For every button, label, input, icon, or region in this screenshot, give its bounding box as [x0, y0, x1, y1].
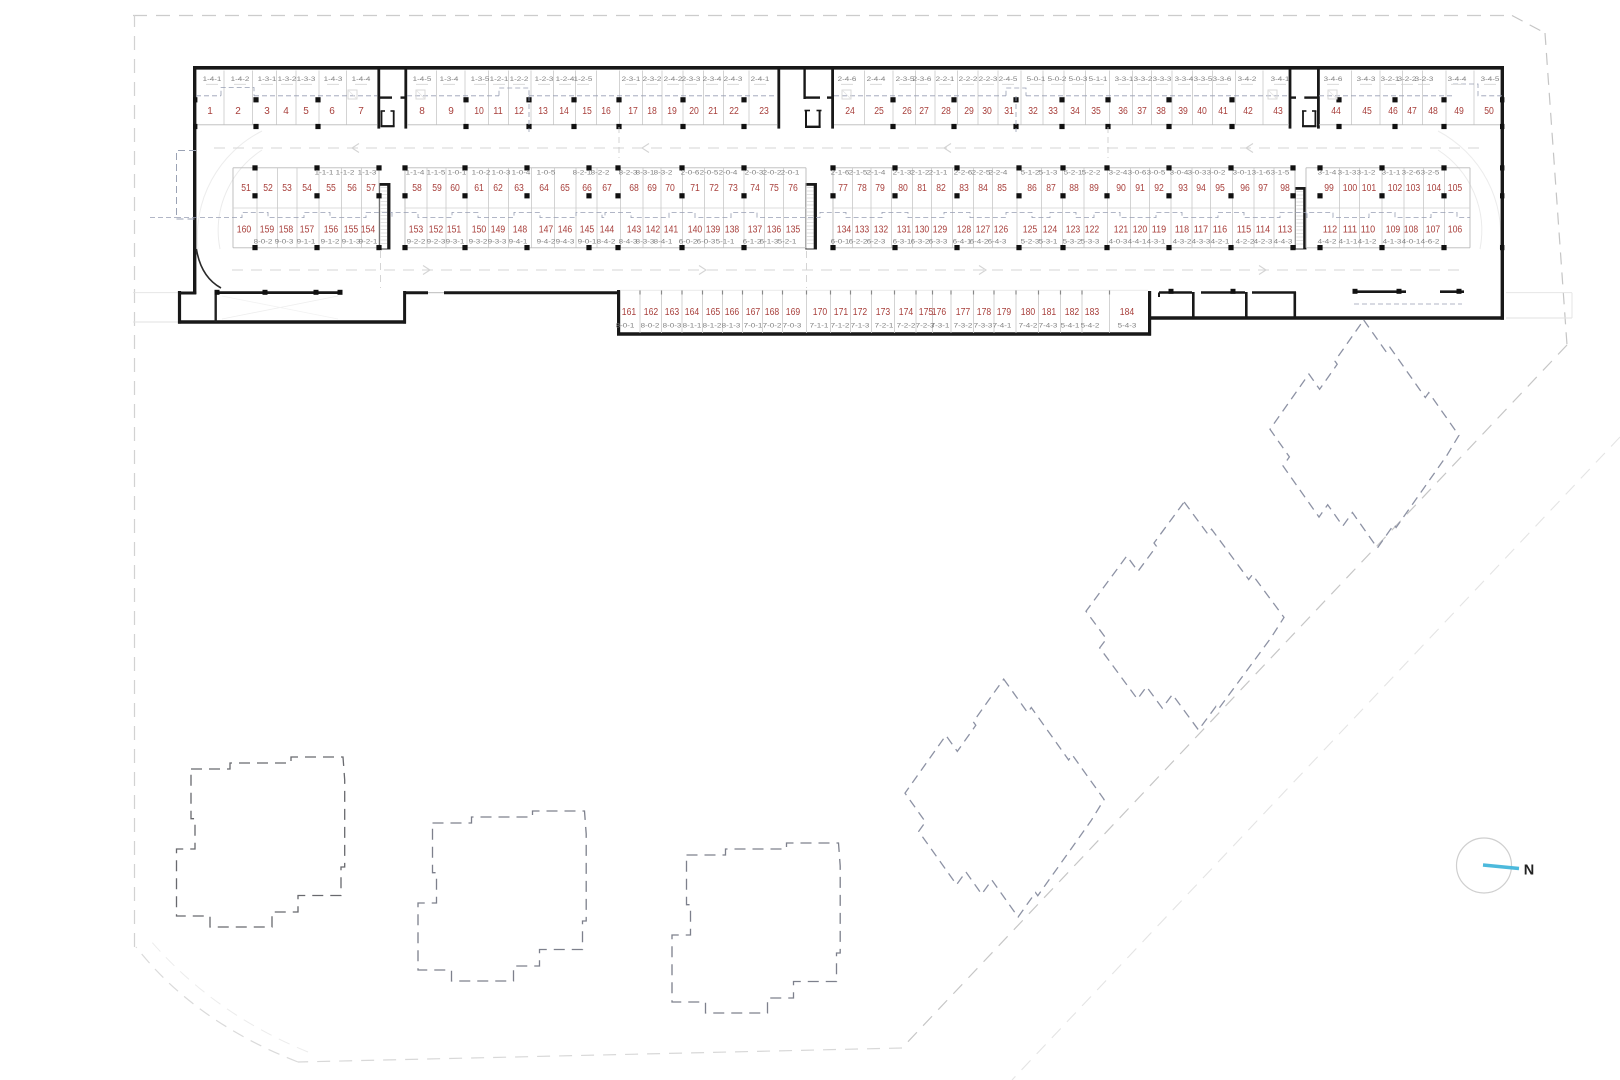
- svg-text:7-3-3: 7-3-3: [974, 323, 993, 330]
- svg-text:7-4-3: 7-4-3: [1039, 323, 1058, 330]
- svg-text:5-3-2: 5-3-2: [1063, 239, 1082, 246]
- svg-text:3-4-4: 3-4-4: [1448, 76, 1467, 83]
- svg-text:67: 67: [602, 183, 612, 194]
- svg-text:1-2-5: 1-2-5: [574, 76, 593, 83]
- svg-text:1-4-2: 1-4-2: [231, 76, 250, 83]
- svg-text:24: 24: [845, 106, 855, 117]
- svg-text:18: 18: [647, 106, 657, 117]
- svg-text:6-4-3: 6-4-3: [988, 239, 1007, 246]
- svg-text:6-4-2: 6-4-2: [970, 239, 989, 246]
- svg-text:144: 144: [600, 225, 615, 236]
- svg-text:135: 135: [786, 225, 801, 236]
- svg-text:136: 136: [767, 225, 782, 236]
- svg-text:55: 55: [326, 183, 336, 194]
- svg-text:8-1-1: 8-1-1: [683, 323, 702, 330]
- svg-text:57: 57: [366, 183, 376, 194]
- svg-text:1-4-5: 1-4-5: [413, 76, 432, 83]
- svg-text:15: 15: [582, 106, 592, 117]
- svg-text:3-4-3: 3-4-3: [1357, 76, 1376, 83]
- svg-text:7-4-1: 7-4-1: [993, 323, 1012, 330]
- svg-text:8-2-1: 8-2-1: [573, 169, 592, 176]
- svg-text:1-2-1: 1-2-1: [490, 76, 509, 83]
- svg-text:4-2-1: 4-2-1: [1211, 239, 1230, 246]
- svg-text:139: 139: [706, 225, 721, 236]
- svg-text:53: 53: [282, 183, 292, 194]
- svg-text:137: 137: [748, 225, 763, 236]
- svg-text:5-2-2: 5-2-2: [1082, 169, 1101, 176]
- svg-text:43: 43: [1273, 106, 1283, 117]
- svg-text:54: 54: [302, 183, 312, 194]
- svg-text:169: 169: [786, 307, 801, 318]
- svg-text:92: 92: [1154, 183, 1164, 194]
- svg-text:164: 164: [685, 307, 700, 318]
- svg-text:162: 162: [644, 307, 659, 318]
- svg-text:95: 95: [1215, 183, 1225, 194]
- svg-text:127: 127: [976, 225, 991, 236]
- svg-text:183: 183: [1085, 307, 1100, 318]
- svg-text:3-0-2: 3-0-2: [1207, 169, 1226, 176]
- svg-text:3-0-4: 3-0-4: [1170, 169, 1189, 176]
- svg-text:3-0-1: 3-0-1: [1233, 169, 1252, 176]
- svg-text:85: 85: [997, 183, 1007, 194]
- svg-text:52: 52: [263, 183, 273, 194]
- svg-text:28: 28: [941, 106, 951, 117]
- svg-text:126: 126: [994, 225, 1009, 236]
- svg-text:9-4-2: 9-4-2: [537, 239, 556, 246]
- svg-text:5: 5: [303, 106, 309, 117]
- svg-text:4-1-1: 4-1-1: [1339, 239, 1358, 246]
- svg-text:39: 39: [1178, 106, 1188, 117]
- svg-text:134: 134: [837, 225, 852, 236]
- svg-text:2-0-2: 2-0-2: [763, 169, 782, 176]
- svg-text:10: 10: [474, 106, 484, 117]
- svg-text:5-1-2: 5-1-2: [1021, 169, 1040, 176]
- svg-text:168: 168: [765, 307, 780, 318]
- svg-text:2-0-3: 2-0-3: [745, 169, 764, 176]
- svg-text:2-2-6: 2-2-6: [954, 169, 973, 176]
- svg-text:118: 118: [1175, 225, 1190, 236]
- svg-text:90: 90: [1116, 183, 1126, 194]
- svg-text:56: 56: [347, 183, 357, 194]
- svg-text:20: 20: [689, 106, 699, 117]
- svg-text:68: 68: [629, 183, 639, 194]
- svg-text:181: 181: [1042, 307, 1057, 318]
- svg-text:110: 110: [1361, 225, 1376, 236]
- svg-text:180: 180: [1021, 307, 1036, 318]
- svg-text:2: 2: [235, 106, 241, 117]
- svg-text:4-6-2: 4-6-2: [1421, 239, 1440, 246]
- svg-text:21: 21: [708, 106, 718, 117]
- svg-text:9-1-2: 9-1-2: [321, 239, 340, 246]
- svg-text:5-4-3: 5-4-3: [1118, 323, 1137, 330]
- svg-text:2-3-1: 2-3-1: [622, 76, 641, 83]
- svg-text:2-1-4: 2-1-4: [867, 169, 886, 176]
- svg-text:2-1-5: 2-1-5: [849, 169, 868, 176]
- svg-text:7-4-2: 7-4-2: [1019, 323, 1038, 330]
- svg-text:58: 58: [412, 183, 422, 194]
- svg-text:170: 170: [813, 307, 828, 318]
- svg-text:2-1-1: 2-1-1: [929, 169, 948, 176]
- svg-text:2-4-4: 2-4-4: [867, 76, 886, 83]
- svg-text:111: 111: [1343, 225, 1358, 236]
- svg-text:96: 96: [1240, 183, 1250, 194]
- svg-text:1-4-4: 1-4-4: [352, 76, 371, 83]
- svg-text:140: 140: [688, 225, 703, 236]
- svg-text:46: 46: [1388, 106, 1398, 117]
- svg-text:103: 103: [1406, 183, 1421, 194]
- svg-text:33: 33: [1048, 106, 1058, 117]
- svg-text:61: 61: [474, 183, 484, 194]
- svg-text:9: 9: [448, 106, 454, 117]
- svg-text:3-3-3: 3-3-3: [1153, 76, 1172, 83]
- svg-text:8: 8: [419, 106, 425, 117]
- svg-text:109: 109: [1386, 225, 1401, 236]
- svg-text:6-2-3: 6-2-3: [867, 239, 886, 246]
- svg-text:165: 165: [706, 307, 721, 318]
- svg-text:5-1-1: 5-1-1: [716, 239, 735, 246]
- svg-text:34: 34: [1070, 106, 1080, 117]
- svg-text:2-3-2: 2-3-2: [643, 76, 662, 83]
- svg-text:101: 101: [1362, 183, 1377, 194]
- svg-text:3-3-4: 3-3-4: [1175, 76, 1194, 83]
- svg-text:4-3-2: 4-3-2: [1173, 239, 1192, 246]
- svg-text:8-1-2: 8-1-2: [703, 323, 722, 330]
- svg-text:4-0-3: 4-0-3: [1109, 239, 1128, 246]
- svg-text:2-1-6: 2-1-6: [831, 169, 850, 176]
- svg-text:60: 60: [450, 183, 460, 194]
- svg-text:6-3-2: 6-3-2: [911, 239, 930, 246]
- svg-text:3-1-2: 3-1-2: [1357, 169, 1376, 176]
- svg-text:8-3-2: 8-3-2: [654, 169, 673, 176]
- svg-text:179: 179: [997, 307, 1012, 318]
- svg-text:7-2-2: 7-2-2: [897, 323, 916, 330]
- svg-text:1-4-1: 1-4-1: [203, 76, 222, 83]
- svg-text:166: 166: [725, 307, 740, 318]
- svg-text:3-2-5: 3-2-5: [1421, 169, 1440, 176]
- svg-text:1-2-4: 1-2-4: [556, 76, 575, 83]
- svg-text:5-2-1: 5-2-1: [1064, 169, 1083, 176]
- svg-text:2-0-4: 2-0-4: [719, 169, 738, 176]
- svg-text:4-4-1: 4-4-1: [1128, 239, 1147, 246]
- svg-text:19: 19: [667, 106, 677, 117]
- svg-text:25: 25: [874, 106, 884, 117]
- svg-text:9-3-1: 9-3-1: [446, 239, 465, 246]
- svg-text:16: 16: [601, 106, 611, 117]
- svg-text:122: 122: [1085, 225, 1100, 236]
- svg-text:105: 105: [1448, 183, 1463, 194]
- svg-text:12: 12: [514, 106, 524, 117]
- svg-text:6-0-1: 6-0-1: [831, 239, 850, 246]
- svg-text:8-1-3: 8-1-3: [722, 323, 741, 330]
- svg-text:1-1-1: 1-1-1: [315, 169, 334, 176]
- svg-text:130: 130: [915, 225, 930, 236]
- svg-text:106: 106: [1448, 225, 1463, 236]
- svg-text:150: 150: [472, 225, 487, 236]
- svg-text:1-1-3: 1-1-3: [358, 169, 377, 176]
- svg-text:3-1-5: 3-1-5: [1271, 169, 1290, 176]
- svg-text:146: 146: [558, 225, 573, 236]
- svg-text:3-1-1: 3-1-1: [1382, 169, 1401, 176]
- svg-text:3-0-3: 3-0-3: [1188, 169, 1207, 176]
- svg-text:7-3-1: 7-3-1: [931, 323, 950, 330]
- svg-text:114: 114: [1256, 225, 1271, 236]
- svg-text:7-2-1: 7-2-1: [875, 323, 894, 330]
- svg-text:50: 50: [1484, 106, 1494, 117]
- svg-text:5-4-2: 5-4-2: [1081, 323, 1100, 330]
- svg-text:27: 27: [919, 106, 929, 117]
- svg-text:9-2-2: 9-2-2: [407, 239, 426, 246]
- svg-text:1-0-1: 1-0-1: [448, 169, 467, 176]
- svg-text:93: 93: [1178, 183, 1188, 194]
- svg-text:13: 13: [538, 106, 548, 117]
- svg-text:42: 42: [1243, 106, 1253, 117]
- svg-text:3-1-6: 3-1-6: [1252, 169, 1271, 176]
- svg-text:2-2-1: 2-2-1: [936, 76, 955, 83]
- svg-text:2-4-6: 2-4-6: [838, 76, 857, 83]
- svg-text:66: 66: [582, 183, 592, 194]
- svg-text:4-2-2: 4-2-2: [1236, 239, 1255, 246]
- svg-text:151: 151: [447, 225, 462, 236]
- svg-text:182: 182: [1065, 307, 1080, 318]
- svg-text:4-2-3: 4-2-3: [1254, 239, 1273, 246]
- svg-text:102: 102: [1388, 183, 1403, 194]
- svg-text:8-0-1: 8-0-1: [616, 323, 635, 330]
- svg-text:131: 131: [897, 225, 912, 236]
- svg-text:9-0-3: 9-0-3: [275, 239, 294, 246]
- svg-text:1-1-5: 1-1-5: [427, 169, 446, 176]
- svg-text:172: 172: [853, 307, 868, 318]
- svg-text:119: 119: [1152, 225, 1167, 236]
- svg-text:2-1-2: 2-1-2: [911, 169, 930, 176]
- svg-text:62: 62: [493, 183, 503, 194]
- svg-text:4-3-1: 4-3-1: [1147, 239, 1166, 246]
- svg-text:4-0-1: 4-0-1: [1402, 239, 1421, 246]
- svg-text:71: 71: [690, 183, 700, 194]
- svg-text:148: 148: [513, 225, 528, 236]
- svg-text:98: 98: [1280, 183, 1290, 194]
- svg-text:8-2-2: 8-2-2: [591, 169, 610, 176]
- svg-text:2-4-2: 2-4-2: [664, 76, 683, 83]
- svg-text:3-3-5: 3-3-5: [1194, 76, 1213, 83]
- svg-text:141: 141: [664, 225, 679, 236]
- svg-text:72: 72: [709, 183, 719, 194]
- svg-text:147: 147: [539, 225, 554, 236]
- svg-text:158: 158: [279, 225, 294, 236]
- svg-text:36: 36: [1118, 106, 1128, 117]
- svg-text:9-2-3: 9-2-3: [427, 239, 446, 246]
- svg-text:65: 65: [560, 183, 570, 194]
- svg-text:41: 41: [1218, 106, 1228, 117]
- svg-text:159: 159: [260, 225, 275, 236]
- svg-text:9-4-1: 9-4-1: [509, 239, 528, 246]
- svg-text:108: 108: [1404, 225, 1419, 236]
- svg-text:1-0-2: 1-0-2: [472, 169, 491, 176]
- svg-text:171: 171: [834, 307, 849, 318]
- svg-text:1-0-5: 1-0-5: [537, 169, 556, 176]
- svg-text:83: 83: [959, 183, 969, 194]
- svg-text:2-4-1: 2-4-1: [751, 76, 770, 83]
- svg-text:45: 45: [1362, 106, 1372, 117]
- svg-text:121: 121: [1114, 225, 1129, 236]
- svg-text:37: 37: [1137, 106, 1147, 117]
- svg-text:107: 107: [1426, 225, 1441, 236]
- svg-text:2-3-6: 2-3-6: [913, 76, 932, 83]
- svg-text:9-3-2: 9-3-2: [469, 239, 488, 246]
- svg-text:7-0-1: 7-0-1: [744, 323, 763, 330]
- svg-text:1-1-2: 1-1-2: [336, 169, 355, 176]
- svg-text:22: 22: [729, 106, 739, 117]
- svg-text:7-3-2: 7-3-2: [954, 323, 973, 330]
- svg-text:7-1-2: 7-1-2: [831, 323, 850, 330]
- svg-text:59: 59: [432, 183, 442, 194]
- svg-text:2-3-3: 2-3-3: [682, 76, 701, 83]
- svg-text:48: 48: [1428, 106, 1438, 117]
- svg-text:2-1-3: 2-1-3: [893, 169, 912, 176]
- svg-text:178: 178: [977, 307, 992, 318]
- svg-text:7-0-3: 7-0-3: [783, 323, 802, 330]
- svg-text:76: 76: [788, 183, 798, 194]
- svg-text:47: 47: [1407, 106, 1417, 117]
- svg-text:26: 26: [902, 106, 912, 117]
- svg-text:82: 82: [936, 183, 946, 194]
- svg-text:6-1-3: 6-1-3: [760, 239, 779, 246]
- svg-text:1-3-3: 1-3-3: [297, 76, 316, 83]
- svg-text:5-1-3: 5-1-3: [1039, 169, 1058, 176]
- svg-text:N: N: [1524, 863, 1534, 879]
- svg-text:8-0-3: 8-0-3: [663, 323, 682, 330]
- svg-text:3-4-6: 3-4-6: [1324, 76, 1343, 83]
- svg-text:5-2-1: 5-2-1: [778, 239, 797, 246]
- svg-text:6: 6: [329, 106, 335, 117]
- svg-text:9-4-3: 9-4-3: [556, 239, 575, 246]
- svg-text:160: 160: [237, 225, 252, 236]
- svg-text:157: 157: [300, 225, 315, 236]
- svg-text:51: 51: [241, 183, 251, 194]
- svg-text:91: 91: [1135, 183, 1145, 194]
- svg-text:116: 116: [1213, 225, 1228, 236]
- svg-text:1-3-1: 1-3-1: [258, 76, 277, 83]
- svg-text:40: 40: [1197, 106, 1207, 117]
- svg-text:143: 143: [627, 225, 642, 236]
- svg-text:35: 35: [1091, 106, 1101, 117]
- svg-text:74: 74: [750, 183, 760, 194]
- svg-text:70: 70: [665, 183, 675, 194]
- svg-text:6-2-2: 6-2-2: [849, 239, 868, 246]
- svg-text:7-1-1: 7-1-1: [810, 323, 829, 330]
- svg-text:31: 31: [1004, 106, 1014, 117]
- svg-text:149: 149: [491, 225, 506, 236]
- svg-text:3-3-2: 3-3-2: [1134, 76, 1153, 83]
- svg-text:17: 17: [628, 106, 638, 117]
- svg-text:64: 64: [539, 183, 549, 194]
- svg-text:99: 99: [1324, 183, 1334, 194]
- svg-text:73: 73: [728, 183, 738, 194]
- svg-text:11: 11: [493, 106, 503, 117]
- svg-text:1-0-3: 1-0-3: [492, 169, 511, 176]
- svg-text:4-3-3: 4-3-3: [1192, 239, 1211, 246]
- svg-text:5-3-3: 5-3-3: [1081, 239, 1100, 246]
- svg-text:6-3-1: 6-3-1: [893, 239, 912, 246]
- svg-text:5-4-1: 5-4-1: [1061, 323, 1080, 330]
- svg-text:84: 84: [978, 183, 988, 194]
- svg-text:113: 113: [1278, 225, 1293, 236]
- svg-text:78: 78: [857, 183, 867, 194]
- svg-text:3-1-3: 3-1-3: [1338, 169, 1357, 176]
- svg-text:9-1-1: 9-1-1: [297, 239, 316, 246]
- svg-text:104: 104: [1427, 183, 1442, 194]
- svg-text:3-4-5: 3-4-5: [1481, 76, 1500, 83]
- svg-text:167: 167: [746, 307, 761, 318]
- svg-text:7-0-2: 7-0-2: [763, 323, 782, 330]
- svg-text:3-3-6: 3-3-6: [1213, 76, 1232, 83]
- svg-text:3-0-6: 3-0-6: [1128, 169, 1147, 176]
- svg-text:2-2-2: 2-2-2: [959, 76, 978, 83]
- svg-text:1-0-4: 1-0-4: [512, 169, 531, 176]
- svg-text:1-3-5: 1-3-5: [471, 76, 490, 83]
- svg-text:79: 79: [875, 183, 885, 194]
- svg-text:9-0-1: 9-0-1: [578, 239, 597, 246]
- svg-text:6-3-3: 6-3-3: [929, 239, 948, 246]
- svg-text:14: 14: [559, 106, 569, 117]
- svg-text:77: 77: [838, 183, 848, 194]
- svg-text:3-4-1: 3-4-1: [1271, 76, 1290, 83]
- svg-text:112: 112: [1323, 225, 1338, 236]
- svg-text:1: 1: [207, 106, 213, 117]
- svg-text:124: 124: [1043, 225, 1058, 236]
- svg-text:176: 176: [932, 307, 947, 318]
- svg-text:3: 3: [264, 106, 270, 117]
- svg-text:5-3-1: 5-3-1: [1039, 239, 1058, 246]
- svg-text:81: 81: [917, 183, 927, 194]
- svg-text:184: 184: [1120, 307, 1135, 318]
- svg-text:115: 115: [1237, 225, 1252, 236]
- svg-text:4: 4: [283, 106, 289, 117]
- svg-text:49: 49: [1454, 106, 1464, 117]
- svg-text:5-0-1: 5-0-1: [1027, 76, 1046, 83]
- svg-text:8-3-3: 8-3-3: [636, 239, 655, 246]
- svg-text:4-4-3: 4-4-3: [1274, 239, 1293, 246]
- svg-text:3-2-3: 3-2-3: [1415, 76, 1434, 83]
- svg-text:97: 97: [1258, 183, 1268, 194]
- svg-text:2-0-1: 2-0-1: [781, 169, 800, 176]
- svg-text:9-3-3: 9-3-3: [488, 239, 507, 246]
- svg-text:9-2-1: 9-2-1: [359, 239, 378, 246]
- svg-text:8-0-2: 8-0-2: [641, 323, 660, 330]
- svg-text:120: 120: [1133, 225, 1148, 236]
- svg-text:2-0-5: 2-0-5: [700, 169, 719, 176]
- svg-text:163: 163: [665, 307, 680, 318]
- svg-text:174: 174: [899, 307, 914, 318]
- svg-text:3-2-6: 3-2-6: [1402, 169, 1421, 176]
- svg-text:100: 100: [1343, 183, 1358, 194]
- svg-text:2-0-6: 2-0-6: [681, 169, 700, 176]
- svg-text:1-2-2: 1-2-2: [510, 76, 529, 83]
- svg-text:94: 94: [1196, 183, 1206, 194]
- svg-text:2-2-4: 2-2-4: [989, 169, 1008, 176]
- svg-text:177: 177: [956, 307, 971, 318]
- svg-text:88: 88: [1069, 183, 1079, 194]
- svg-text:38: 38: [1156, 106, 1166, 117]
- svg-text:1-4-3: 1-4-3: [324, 76, 343, 83]
- svg-text:145: 145: [580, 225, 595, 236]
- svg-text:1-3-2: 1-3-2: [278, 76, 297, 83]
- svg-text:155: 155: [344, 225, 359, 236]
- svg-text:63: 63: [514, 183, 524, 194]
- svg-text:32: 32: [1028, 106, 1038, 117]
- svg-text:2-4-5: 2-4-5: [999, 76, 1018, 83]
- svg-text:154: 154: [361, 225, 376, 236]
- svg-text:69: 69: [647, 183, 657, 194]
